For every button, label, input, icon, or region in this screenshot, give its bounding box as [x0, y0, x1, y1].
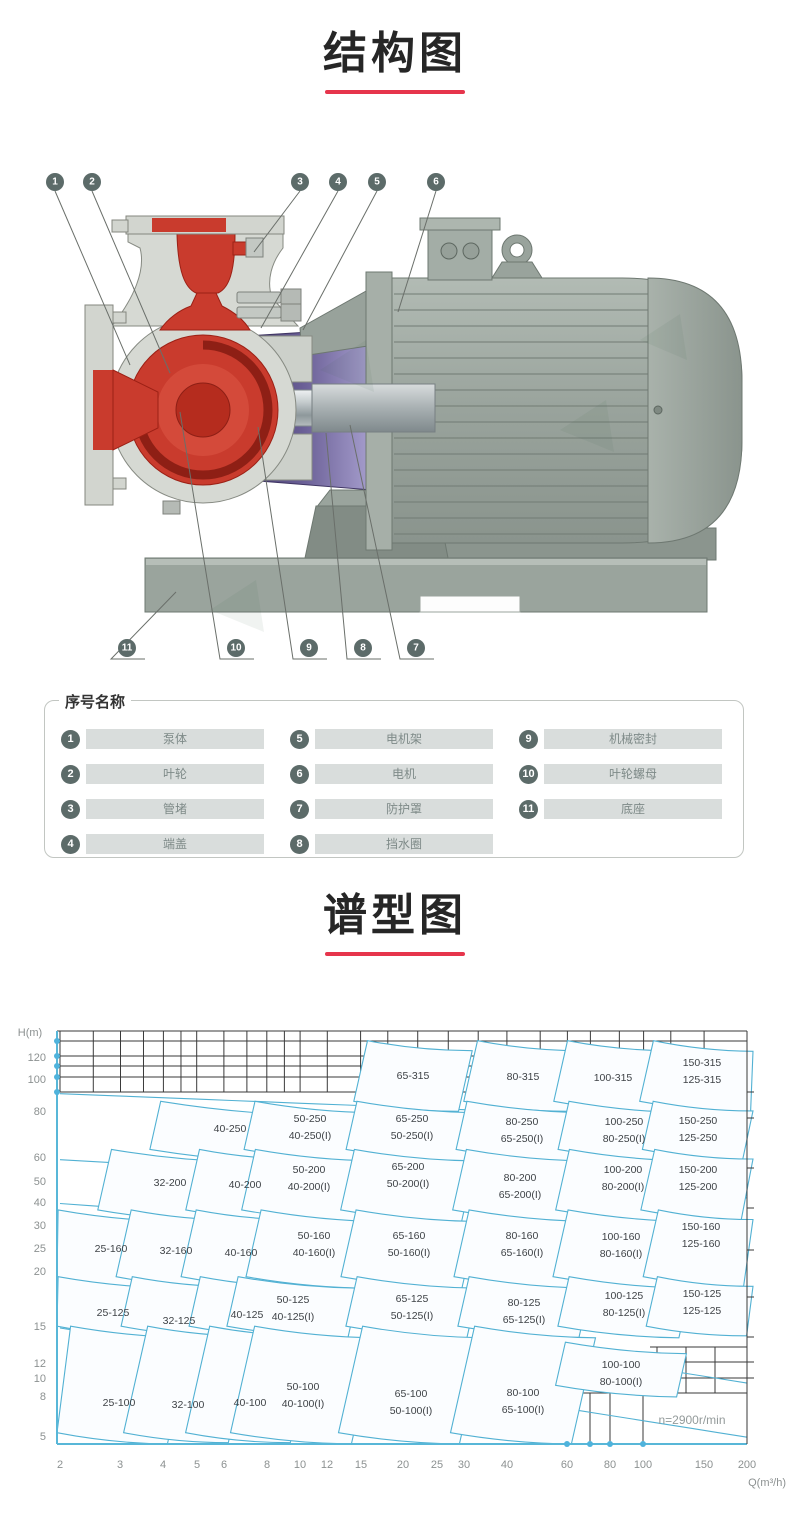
part-item: 8挡水圈 — [290, 834, 498, 854]
part-number-badge: 9 — [519, 730, 538, 749]
pump-model-label: 80-200(I) — [602, 1181, 645, 1193]
part-name-label: 电机 — [315, 764, 493, 784]
pump-model-label: 80-250(I) — [603, 1133, 646, 1145]
x-tick-label: 8 — [264, 1459, 270, 1471]
part-number-badge: 5 — [290, 730, 309, 749]
x-tick-label: 15 — [355, 1459, 367, 1471]
pump-model-label: 50-100 — [287, 1381, 320, 1393]
y-tick-label: 8 — [40, 1391, 46, 1403]
part-item: 6电机 — [290, 764, 498, 784]
pump-model-label: 40-250(I) — [289, 1130, 332, 1142]
x-tick-label: 5 — [194, 1459, 200, 1471]
part-item: 7防护罩 — [290, 799, 498, 819]
pump-model-label: 25-100 — [103, 1397, 136, 1409]
pump-model-label: 32-200 — [154, 1177, 187, 1189]
structure-section-header: 结构图 — [0, 32, 790, 94]
part-number-badge: 1 — [61, 730, 80, 749]
drain-plug — [163, 501, 180, 514]
pipe-plug — [233, 242, 246, 255]
part-number-badge: 4 — [61, 835, 80, 854]
y-axis-title: H(m) — [18, 1027, 42, 1039]
pump-model-label: 80-125 — [508, 1297, 541, 1309]
speed-annotation: n=2900r/min — [658, 1413, 725, 1427]
part-item: 9机械密封 — [519, 729, 727, 749]
pump-model-label: 150-250 — [679, 1115, 718, 1127]
pump-model-label: 40-250 — [214, 1123, 247, 1135]
spectrum-section-header: 谱型图 — [0, 894, 790, 956]
pump-model-label: 100-160 — [602, 1231, 641, 1243]
pump-model-label: 65-200(I) — [499, 1189, 542, 1201]
part-number-badge: 11 — [519, 800, 538, 819]
part-name-label: 电机架 — [315, 729, 493, 749]
parts-legend-title: 序号名称 — [59, 691, 131, 712]
pump-model-label: 40-160 — [225, 1247, 258, 1259]
pump-model-label: 65-100(I) — [502, 1404, 545, 1416]
pump-model-label: 65-160 — [393, 1230, 426, 1242]
impeller-hub — [176, 383, 230, 437]
terminal-box — [428, 226, 492, 280]
pump-model-label: 100-100 — [602, 1359, 641, 1371]
pump-model-label: 100-250 — [605, 1116, 644, 1128]
casing-bolt — [237, 307, 281, 318]
x-tick-label: 20 — [397, 1459, 409, 1471]
pump-model-label: 125-125 — [683, 1305, 722, 1317]
x-tick-label: 30 — [458, 1459, 470, 1471]
pump-model-label: 40-100 — [234, 1397, 267, 1409]
x-tick-label: 10 — [294, 1459, 306, 1471]
lifting-eye — [506, 239, 528, 261]
pump-model-label: 80-125(I) — [603, 1307, 646, 1319]
part-name-label: 机械密封 — [544, 729, 722, 749]
pump-model-label: 50-100(I) — [390, 1405, 433, 1417]
callout-number: 2 — [89, 177, 95, 188]
parts-column: 5电机架6电机7防护罩8挡水圈 — [290, 729, 498, 869]
part-item: 10叶轮螺母 — [519, 764, 727, 784]
pump-casing — [85, 216, 301, 514]
pump-model-label: 65-125 — [396, 1293, 429, 1305]
pump-model-label: 40-200(I) — [288, 1181, 331, 1193]
y-tick-label: 50 — [34, 1176, 46, 1188]
part-name-label: 管堵 — [86, 799, 264, 819]
parts-column: 9机械密封10叶轮螺母11底座 — [519, 729, 727, 869]
callout-number: 5 — [374, 177, 380, 188]
pump-model-label: 80-160 — [506, 1230, 539, 1242]
title-underline — [325, 90, 465, 94]
part-item: 5电机架 — [290, 729, 498, 749]
part-item: 11底座 — [519, 799, 727, 819]
pump-model-label: 150-160 — [682, 1221, 721, 1233]
x-tick-label: 60 — [561, 1459, 573, 1471]
pump-model-label: 125-160 — [682, 1238, 721, 1250]
casing-bolt — [237, 292, 281, 303]
pump-model-label: 100-125 — [605, 1290, 644, 1302]
callout-number: 11 — [122, 643, 133, 654]
callout-number: 1 — [52, 177, 58, 188]
x-tick-label: 200 — [738, 1459, 756, 1471]
pump-model-label: 65-160(I) — [501, 1247, 544, 1259]
pump-model-label: 125-200 — [679, 1181, 718, 1193]
y-tick-label: 20 — [34, 1266, 46, 1278]
pump-model-label: 40-160(I) — [293, 1247, 336, 1259]
pump-model-label: 65-250(I) — [501, 1133, 544, 1145]
page: 结构图 — [0, 0, 790, 1520]
pump-model-label: 80-100(I) — [600, 1376, 643, 1388]
x-tick-label: 40 — [501, 1459, 513, 1471]
part-item: 4端盖 — [61, 834, 269, 854]
pump-model-label: 80-315 — [507, 1071, 540, 1083]
x-tick-label: 100 — [634, 1459, 652, 1471]
part-name-label: 叶轮 — [86, 764, 264, 784]
callout-number: 9 — [306, 643, 312, 654]
pump-model-label: 100-200 — [604, 1164, 643, 1176]
part-number-badge: 8 — [290, 835, 309, 854]
pump-model-label: 40-100(I) — [282, 1398, 325, 1410]
pump-model-label: 80-160(I) — [600, 1248, 643, 1260]
part-item: 3管堵 — [61, 799, 269, 819]
parts-column: 1泵体2叶轮3管堵4端盖 — [61, 729, 269, 869]
pump-model-label: 65-100 — [395, 1388, 428, 1400]
y-tick-label: 100 — [28, 1074, 46, 1086]
pump-model-label: 65-250 — [396, 1113, 429, 1125]
y-tick-label: 5 — [40, 1431, 46, 1443]
pump-model-label: 25-125 — [97, 1307, 130, 1319]
pump-model-label: 50-125 — [277, 1294, 310, 1306]
y-tick-label: 10 — [34, 1373, 46, 1385]
pump-model-label: 80-100 — [507, 1387, 540, 1399]
part-name-label: 挡水圈 — [315, 834, 493, 854]
y-tick-label: 60 — [34, 1152, 46, 1164]
pump-model-label: 150-315 — [683, 1057, 722, 1069]
pump-model-label: 40-125 — [231, 1309, 264, 1321]
spectrum-chart: 65-31580-315100-315150-315125-31540-2505… — [0, 1000, 790, 1520]
y-tick-label: 120 — [28, 1052, 46, 1064]
pump-model-label: 50-160 — [298, 1230, 331, 1242]
part-name-label: 端盖 — [86, 834, 264, 854]
title-underline — [325, 952, 465, 956]
part-item: 1泵体 — [61, 729, 269, 749]
part-name-label: 底座 — [544, 799, 722, 819]
callout-number: 6 — [433, 177, 439, 188]
pump-model-label: 50-125(I) — [391, 1310, 434, 1322]
y-tick-label: 40 — [34, 1197, 46, 1209]
x-tick-label: 80 — [604, 1459, 616, 1471]
pump-model-label: 50-160(I) — [388, 1247, 431, 1259]
pump-model-label: 125-315 — [683, 1074, 722, 1086]
y-tick-label: 12 — [34, 1358, 46, 1370]
part-number-badge: 7 — [290, 800, 309, 819]
part-number-badge: 2 — [61, 765, 80, 784]
pump-model-label: 125-250 — [679, 1132, 718, 1144]
part-number-badge: 3 — [61, 800, 80, 819]
callout-number: 10 — [230, 643, 242, 654]
pump-model-label: 50-250(I) — [391, 1130, 434, 1142]
x-tick-label: 4 — [160, 1459, 166, 1471]
structure-title: 结构图 — [0, 32, 790, 76]
part-name-label: 叶轮螺母 — [544, 764, 722, 784]
pump-model-label: 80-250 — [506, 1116, 539, 1128]
part-number-badge: 6 — [290, 765, 309, 784]
pump-model-label: 80-200 — [504, 1172, 537, 1184]
part-name-label: 泵体 — [86, 729, 264, 749]
pump-model-label: 65-315 — [397, 1070, 430, 1082]
x-tick-label: 150 — [695, 1459, 713, 1471]
x-tick-label: 2 — [57, 1459, 63, 1471]
callout-number: 7 — [413, 643, 419, 654]
pump-model-label: 50-200(I) — [387, 1178, 430, 1190]
pump-model-label: 50-250 — [294, 1113, 327, 1125]
pump-model-label: 32-160 — [160, 1245, 193, 1257]
pump-model-label: 32-125 — [163, 1315, 196, 1327]
x-tick-label: 25 — [431, 1459, 443, 1471]
parts-legend-panel: 序号名称 1泵体2叶轮3管堵4端盖5电机架6电机7防护罩8挡水圈9机械密封10叶… — [44, 700, 744, 858]
callout-number: 3 — [297, 177, 303, 188]
callout-number: 4 — [335, 177, 341, 188]
pump-model-label: 150-125 — [683, 1288, 722, 1300]
part-item: 2叶轮 — [61, 764, 269, 784]
callout-number: 8 — [360, 643, 366, 654]
pump-model-label: 100-315 — [594, 1072, 633, 1084]
part-name-label: 防护罩 — [315, 799, 493, 819]
pump-model-label: 65-125(I) — [503, 1314, 546, 1326]
spectrum-title: 谱型图 — [0, 894, 790, 938]
part-number-badge: 10 — [519, 765, 538, 784]
pump-model-label: 50-200 — [293, 1164, 326, 1176]
x-axis-title: Q(m³/h) — [748, 1477, 786, 1489]
pump-model-label: 40-200 — [229, 1179, 262, 1191]
pump-model-label: 65-200 — [392, 1161, 425, 1173]
x-tick-label: 12 — [321, 1459, 333, 1471]
y-tick-label: 25 — [34, 1243, 46, 1255]
pump-model-label: 32-100 — [172, 1399, 205, 1411]
y-tick-label: 80 — [34, 1106, 46, 1118]
parts-columns: 1泵体2叶轮3管堵4端盖5电机架6电机7防护罩8挡水圈9机械密封10叶轮螺母11… — [45, 701, 743, 869]
x-tick-label: 3 — [117, 1459, 123, 1471]
pump-model-label: 40-125(I) — [272, 1311, 315, 1323]
y-tick-label: 15 — [34, 1321, 46, 1333]
y-tick-label: 30 — [34, 1220, 46, 1232]
pump-model-label: 150-200 — [679, 1164, 718, 1176]
pump-model-label: 25-160 — [95, 1243, 128, 1255]
pump-structure-diagram: 1234561110987 — [0, 130, 790, 690]
x-tick-label: 6 — [221, 1459, 227, 1471]
